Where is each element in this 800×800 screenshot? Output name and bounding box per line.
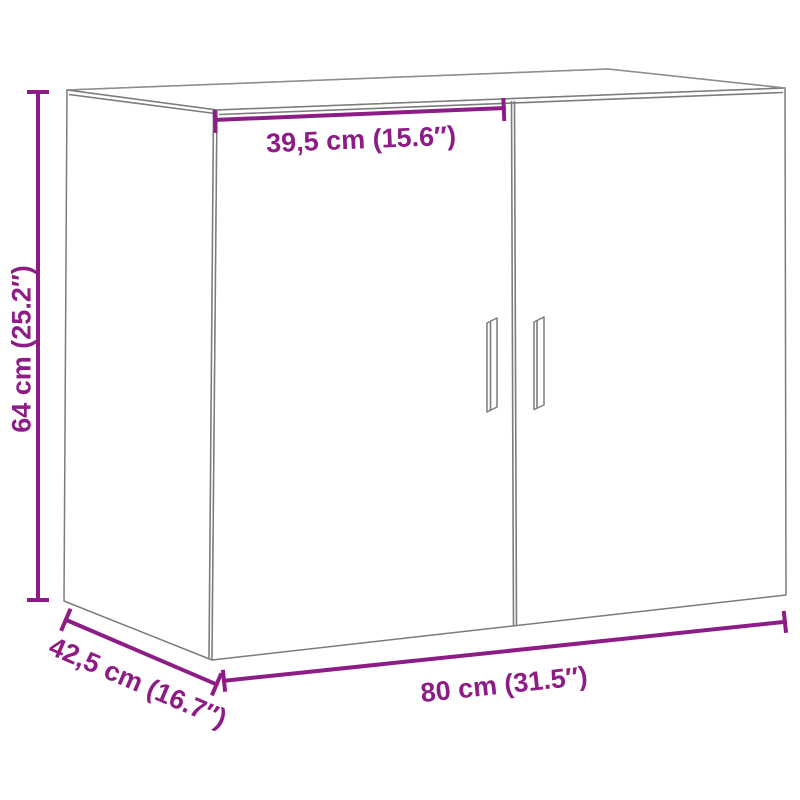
handle-bar bbox=[534, 317, 544, 410]
dimension-tick-end bbox=[784, 611, 786, 633]
door-handle-right bbox=[534, 317, 544, 410]
dimension-diagram-svg: 39,5 cm (15.6″) 64 cm (25.2″) 42,5 cm (1… bbox=[0, 0, 800, 800]
dimension-label-height: 64 cm (25.2″) bbox=[6, 265, 36, 433]
cabinet-side-panel bbox=[64, 90, 217, 660]
dimension-tick-start bbox=[223, 670, 225, 692]
cabinet-drawing bbox=[64, 69, 786, 660]
cabinet-front-face bbox=[212, 88, 786, 660]
product-dimension-image: 39,5 cm (15.6″) 64 cm (25.2″) 42,5 cm (1… bbox=[0, 0, 800, 800]
dimension-tick-end bbox=[503, 98, 504, 121]
dimension-tick-start bbox=[215, 110, 216, 133]
door-handle-left bbox=[487, 318, 497, 412]
handle-bar bbox=[487, 318, 497, 412]
